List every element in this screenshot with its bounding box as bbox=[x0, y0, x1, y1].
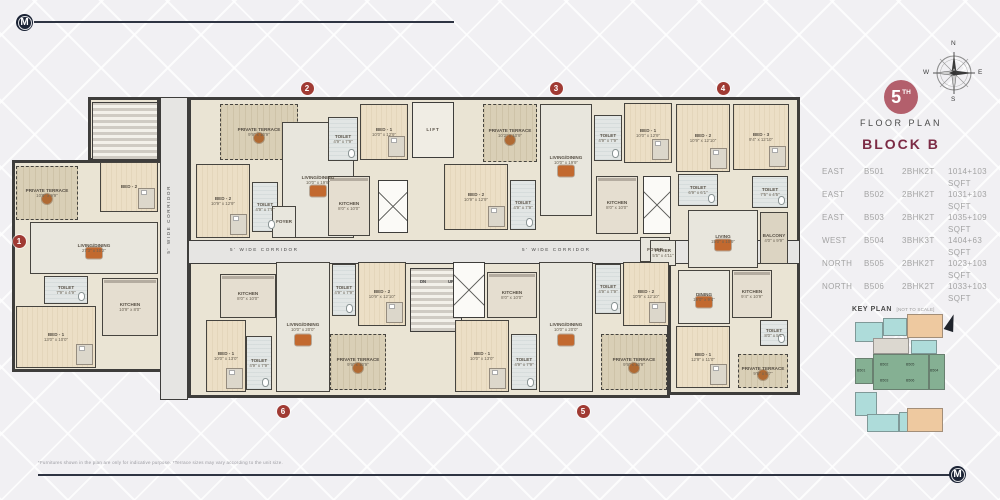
toilet-furniture-icon bbox=[708, 194, 715, 203]
room-dimensions: 7'9" x 4'9" bbox=[56, 290, 75, 295]
room-bed-2: BED - 210'9" x 12'9" bbox=[444, 164, 508, 230]
room-dimensions: 4'9" x 7'9" bbox=[333, 139, 352, 144]
unit-number-badge: 3 bbox=[550, 82, 563, 95]
living-furniture-icon bbox=[558, 334, 574, 345]
room-toilet: TOILET4'9" x 7'9" bbox=[511, 334, 537, 390]
room-kitchen: KITCHEN8'0" x 10'0" bbox=[487, 272, 537, 318]
units-table-cell-unit_type: 2BHK2T bbox=[902, 189, 948, 212]
units-table-cell-unit_no: B501 bbox=[864, 166, 902, 189]
room-dimensions: 10'0" x 20'0" bbox=[554, 327, 578, 332]
room-toilet: TOILET7'5" x 4'5" bbox=[752, 176, 788, 208]
key-plan-map: B501B502B505B503B506B504 bbox=[853, 312, 945, 436]
room-living-dining: LIVING/DINING10'0" x 20'0" bbox=[539, 262, 593, 392]
room-dimensions: 10'9" x 12'10" bbox=[369, 294, 396, 299]
floor-ordinal: TH bbox=[902, 90, 911, 97]
room-dimensions: 10'0" x 19'9" bbox=[554, 160, 578, 165]
stair-direction-label: UP bbox=[448, 279, 454, 284]
units-table-cell-unit_no: B503 bbox=[864, 212, 902, 235]
room-dimensions: 19'0" x 9'4" bbox=[693, 297, 715, 302]
kitchen-furniture-icon bbox=[734, 272, 770, 275]
kitchen-furniture-icon bbox=[104, 280, 156, 283]
room-foyer: FOYER bbox=[272, 206, 296, 238]
living-furniture-icon bbox=[558, 166, 574, 177]
units-table-cell-area: 1404+63 SQFT bbox=[948, 235, 994, 258]
room-dimensions: 8'0" x 10'0" bbox=[338, 206, 360, 211]
living-furniture-icon bbox=[310, 186, 326, 197]
room-bed-1: BED - 113'0" x 10'0" bbox=[16, 306, 96, 368]
compass-s: S bbox=[951, 96, 955, 103]
room-kitchen: KITCHEN10'9" x 8'0" bbox=[102, 278, 158, 336]
shaft-core bbox=[453, 262, 485, 318]
toilet-furniture-icon bbox=[611, 302, 618, 311]
room-toilet: TOILET8'0" x 5'1" bbox=[760, 320, 788, 346]
stair-core bbox=[92, 102, 158, 160]
room-living-dining: LIVING/DINING27'3" x 10'2" bbox=[30, 222, 158, 274]
unit-number-badge: 1 bbox=[13, 235, 26, 248]
units-table-cell-facing: EAST bbox=[822, 212, 864, 235]
units-table-cell-area: 1035+109 SQFT bbox=[948, 212, 994, 235]
units-table-cell-unit_type: 2BHK2T bbox=[902, 258, 948, 281]
units-table: EASTB5012BHK2T1014+103 SQFTEASTB5022BHK2… bbox=[822, 166, 994, 304]
toilet-furniture-icon bbox=[778, 196, 785, 205]
floor-caption: FLOOR PLAN bbox=[856, 118, 946, 128]
key-plan-block-cyan bbox=[855, 392, 877, 416]
room-dimensions: 9'9" x 10'9" bbox=[623, 362, 645, 367]
toilet-furniture-icon bbox=[262, 378, 269, 387]
key-plan-block-orange bbox=[907, 408, 943, 432]
room-bed-2: BED - 2 bbox=[100, 162, 158, 212]
room-balcony: BALCONY4'0" x 9'9" bbox=[760, 212, 788, 264]
room-private-terrace: PRIVATE TERRACE10'8" x 9'9" bbox=[16, 166, 78, 220]
corridor-label: 5' WIDE CORRIDOR bbox=[522, 247, 591, 252]
bed-furniture-icon bbox=[652, 139, 669, 160]
block-title: BLOCK B bbox=[846, 136, 956, 152]
key-plan-unit-label: B503 bbox=[880, 378, 888, 383]
toilet-furniture-icon bbox=[346, 304, 353, 313]
kitchen-furniture-icon bbox=[330, 178, 368, 181]
room-dimensions: 10'0" x 12'9" bbox=[636, 133, 660, 138]
key-plan-unit-label: B501 bbox=[857, 368, 865, 373]
brand-logo-letter: M bbox=[20, 18, 28, 28]
room-dimensions: 13'0" x 10'0" bbox=[44, 337, 68, 342]
room-toilet: TOILET4'9" x 7'9" bbox=[246, 336, 272, 390]
room-private-terrace: PRIVATE TERRACE9'9" x 10'9" bbox=[601, 334, 667, 390]
room-label: FOYER bbox=[276, 219, 292, 224]
living-furniture-icon bbox=[295, 334, 311, 345]
room-dimensions: 10'2" x 10'9" bbox=[498, 133, 522, 138]
key-plan-block-green bbox=[873, 354, 929, 390]
toilet-furniture-icon bbox=[348, 149, 355, 158]
toilet-furniture-icon bbox=[78, 292, 85, 301]
room-living-dining: LIVING/DINING10'0" x 19'9" bbox=[540, 104, 592, 216]
floor-plan: LIFTPRIVATE TERRACE10'8" x 9'9"BED - 2LI… bbox=[0, 0, 810, 500]
room-toilet: TOILET4'9" x 7'9" bbox=[510, 180, 536, 230]
units-table-cell-unit_no: B504 bbox=[864, 235, 902, 258]
room-toilet: TOILET7'9" x 4'9" bbox=[44, 276, 88, 304]
unit-number-badge: 6 bbox=[277, 405, 290, 418]
bed-furniture-icon bbox=[769, 146, 786, 167]
room-dimensions: 10'0" x 13'0" bbox=[214, 356, 238, 361]
floor-plan-page: M LIFTPRIVATE TERRACE10'8" x 9'9"BED - 2… bbox=[0, 0, 1000, 500]
compass-e: E bbox=[978, 69, 982, 76]
room-private-terrace: PRIVATE TERRACE9'9" x 9'7" bbox=[738, 354, 788, 388]
room-dimensions: 12'9" x 11'0" bbox=[691, 357, 715, 362]
room-dimensions: 4'0" x 9'9" bbox=[764, 238, 783, 243]
units-table-cell-unit_type: 3BHK3T bbox=[902, 235, 948, 258]
room-private-terrace: PRIVATE TERRACE10'2" x 10'9" bbox=[483, 104, 537, 162]
corridor-label: 5' WIDE CORRIDOR bbox=[230, 247, 299, 252]
room-bed-2: BED - 210'9" x 12'10" bbox=[623, 262, 669, 326]
room-dimensions: 9'9" x 10'9" bbox=[347, 362, 369, 367]
room-living: LIVING15'0" x 10'9" bbox=[688, 210, 758, 268]
room-living-dining: LIVING/DINING10'0" x 20'0" bbox=[276, 262, 330, 392]
bed-furniture-icon bbox=[386, 302, 403, 323]
room-toilet: TOILET4'9" x 7'9" bbox=[595, 264, 621, 314]
key-plan-block-gray bbox=[873, 338, 909, 354]
room-dimensions: 10'0" x 20'0" bbox=[291, 327, 315, 332]
bed-furniture-icon bbox=[489, 368, 506, 389]
units-table-cell-area: 1031+103 SQFT bbox=[948, 189, 994, 212]
room-bed-2: BED - 210'9" x 12'9" bbox=[196, 164, 250, 238]
room-dining: DINING19'0" x 9'4" bbox=[678, 270, 730, 324]
bed-furniture-icon bbox=[76, 344, 93, 365]
key-plan-block-cyan bbox=[911, 340, 937, 354]
units-table-cell-unit_type: 2BHK2T bbox=[902, 166, 948, 189]
room-kitchen: KITCHEN8'0" x 10'0" bbox=[220, 274, 276, 318]
room-dimensions: 27'3" x 10'2" bbox=[82, 248, 106, 253]
room-toilet: TOILET4'9" x 7'9" bbox=[332, 264, 356, 316]
room-dimensions: 5'5" x 4'11" bbox=[652, 253, 673, 258]
room-dimensions: 8'0" x 10'0" bbox=[606, 205, 628, 210]
lift: LIFT bbox=[412, 102, 454, 158]
bed-furniture-icon bbox=[138, 188, 155, 209]
kitchen-furniture-icon bbox=[222, 276, 274, 279]
room-label: BED - 2 bbox=[121, 184, 137, 189]
units-table-cell-facing: EAST bbox=[822, 166, 864, 189]
room-dimensions: 10'0" x 12'9" bbox=[372, 132, 396, 137]
room-dimensions: 9'9" x 10'9" bbox=[248, 132, 270, 137]
compass: N E S W bbox=[925, 44, 983, 102]
bed-furniture-icon bbox=[226, 368, 243, 389]
toilet-furniture-icon bbox=[526, 218, 533, 227]
toilet-furniture-icon bbox=[268, 220, 275, 229]
room-toilet: TOILET4'9" x 7'9" bbox=[594, 115, 622, 161]
room-dimensions: 10'9" x 12'9" bbox=[464, 197, 488, 202]
room-dimensions: 10'0" x 13'0" bbox=[470, 356, 494, 361]
floor-number-badge: 5 TH bbox=[884, 80, 918, 114]
brand-logo-bottom: M bbox=[949, 466, 966, 483]
room-dimensions: 4'9" x 7'9" bbox=[598, 138, 617, 143]
bed-furniture-icon bbox=[710, 148, 727, 169]
room-dimensions: 4'9" x 7'9" bbox=[514, 362, 533, 367]
units-table-cell-facing: NORTH bbox=[822, 258, 864, 281]
brand-logo-letter: M bbox=[953, 470, 961, 480]
toilet-furniture-icon bbox=[527, 378, 534, 387]
units-table-cell-area: 1023+103 SQFT bbox=[948, 258, 994, 281]
room-dimensions: 8'0" x 10'0" bbox=[237, 296, 259, 301]
room-dimensions: 9'9" x 9'7" bbox=[753, 371, 772, 376]
room-bed-1: BED - 110'0" x 12'9" bbox=[360, 104, 408, 160]
room-dimensions: 10'9" x 12'10" bbox=[690, 138, 717, 143]
room-dimensions: 7'5" x 4'5" bbox=[760, 192, 779, 197]
room-dimensions: 4'9" x 7'9" bbox=[334, 290, 353, 295]
bed-furniture-icon bbox=[388, 136, 405, 157]
bed-furniture-icon bbox=[488, 206, 505, 227]
compass-n: N bbox=[951, 40, 956, 47]
compass-w: W bbox=[923, 69, 929, 76]
units-table-cell-unit_no: B502 bbox=[864, 189, 902, 212]
room-dimensions: 9'4" x 12'10" bbox=[749, 137, 773, 142]
room-toilet: TOILET4'9" x 7'9" bbox=[328, 117, 358, 161]
units-table-cell-unit_type: 2BHK2T bbox=[902, 212, 948, 235]
room-private-terrace: PRIVATE TERRACE9'9" x 10'9" bbox=[330, 334, 386, 390]
toilet-furniture-icon bbox=[612, 149, 619, 158]
unit-number-badge: 5 bbox=[577, 405, 590, 418]
key-plan-unit-label: B504 bbox=[930, 368, 938, 373]
room-toilet: TOILET6'9" x 6'1" bbox=[678, 174, 718, 206]
unit-number-badge: 4 bbox=[717, 82, 730, 95]
room-dimensions: 4'9" x 7'9" bbox=[598, 289, 617, 294]
room-dimensions: 4'9" x 7'9" bbox=[255, 207, 274, 212]
kitchen-furniture-icon bbox=[489, 274, 535, 277]
room-bed-2: BED - 210'9" x 12'10" bbox=[676, 104, 730, 172]
room-dimensions: 4'9" x 7'9" bbox=[249, 363, 268, 368]
floor-number: 5 bbox=[891, 88, 901, 106]
kitchen-furniture-icon bbox=[598, 178, 636, 181]
corridor-label: 5' WIDE CORRIDOR bbox=[166, 185, 171, 254]
units-table-cell-area: 1014+103 SQFT bbox=[948, 166, 994, 189]
key-plan-block-cyan bbox=[867, 414, 899, 432]
room-dimensions: 10'9" x 8'0" bbox=[119, 307, 141, 312]
disclaimer: *Furnitures shown in the plan are only f… bbox=[38, 460, 283, 465]
bed-furniture-icon bbox=[710, 364, 727, 385]
room-dimensions: 8'0" x 5'1" bbox=[764, 333, 783, 338]
room-dimensions: 6'9" x 6'1" bbox=[688, 190, 707, 195]
key-plan-unit-label: B505 bbox=[906, 362, 914, 367]
room-dimensions: 4'9" x 7'9" bbox=[513, 205, 532, 210]
room-bed-1: BED - 110'0" x 13'0" bbox=[206, 320, 246, 392]
key-plan-block-orange bbox=[907, 314, 943, 338]
room-dimensions: 10'8" x 9'9" bbox=[36, 193, 58, 198]
room-toilet: TOILET4'9" x 7'9" bbox=[252, 182, 278, 232]
shaft-core bbox=[378, 180, 408, 233]
room-dimensions: 15'0" x 10'9" bbox=[711, 239, 735, 244]
room-bed-1: BED - 110'0" x 12'9" bbox=[624, 103, 672, 163]
shaft-core bbox=[643, 176, 671, 234]
room-dimensions: 10'9" x 12'9" bbox=[211, 201, 235, 206]
key-plan-unit-label: B502 bbox=[880, 362, 888, 367]
bed-furniture-icon bbox=[230, 214, 247, 235]
units-table-cell-unit_no: B505 bbox=[864, 258, 902, 281]
room-bed-3: BED - 39'4" x 12'10" bbox=[733, 104, 789, 170]
room-bed-1: BED - 112'9" x 11'0" bbox=[676, 326, 730, 388]
room-kitchen: KITCHEN9'4" x 10'9" bbox=[732, 270, 772, 318]
room-bed-2: BED - 210'9" x 12'10" bbox=[358, 262, 406, 326]
stair-direction-label: DN bbox=[420, 279, 426, 284]
room-bed-1: BED - 110'0" x 13'0" bbox=[455, 320, 509, 392]
compass-rose-icon bbox=[925, 44, 983, 102]
room-kitchen: KITCHEN8'0" x 10'0" bbox=[328, 176, 370, 236]
bed-furniture-icon bbox=[649, 302, 666, 323]
bottom-rule bbox=[38, 474, 950, 476]
room-dimensions: 10'9" x 12'10" bbox=[633, 294, 660, 299]
room-dimensions: 10'0" x 19'9" bbox=[306, 180, 330, 185]
corridor bbox=[160, 97, 188, 400]
unit-number-badge: 2 bbox=[301, 82, 314, 95]
key-plan-block-cyan bbox=[883, 318, 907, 336]
room-dimensions: 9'4" x 10'9" bbox=[741, 294, 763, 299]
room-kitchen: KITCHEN8'0" x 10'0" bbox=[596, 176, 638, 234]
units-table-cell-facing: EAST bbox=[822, 189, 864, 212]
room-dimensions: 8'0" x 10'0" bbox=[501, 295, 523, 300]
key-plan-unit-label: B506 bbox=[906, 378, 914, 383]
units-table-cell-facing: WEST bbox=[822, 235, 864, 258]
